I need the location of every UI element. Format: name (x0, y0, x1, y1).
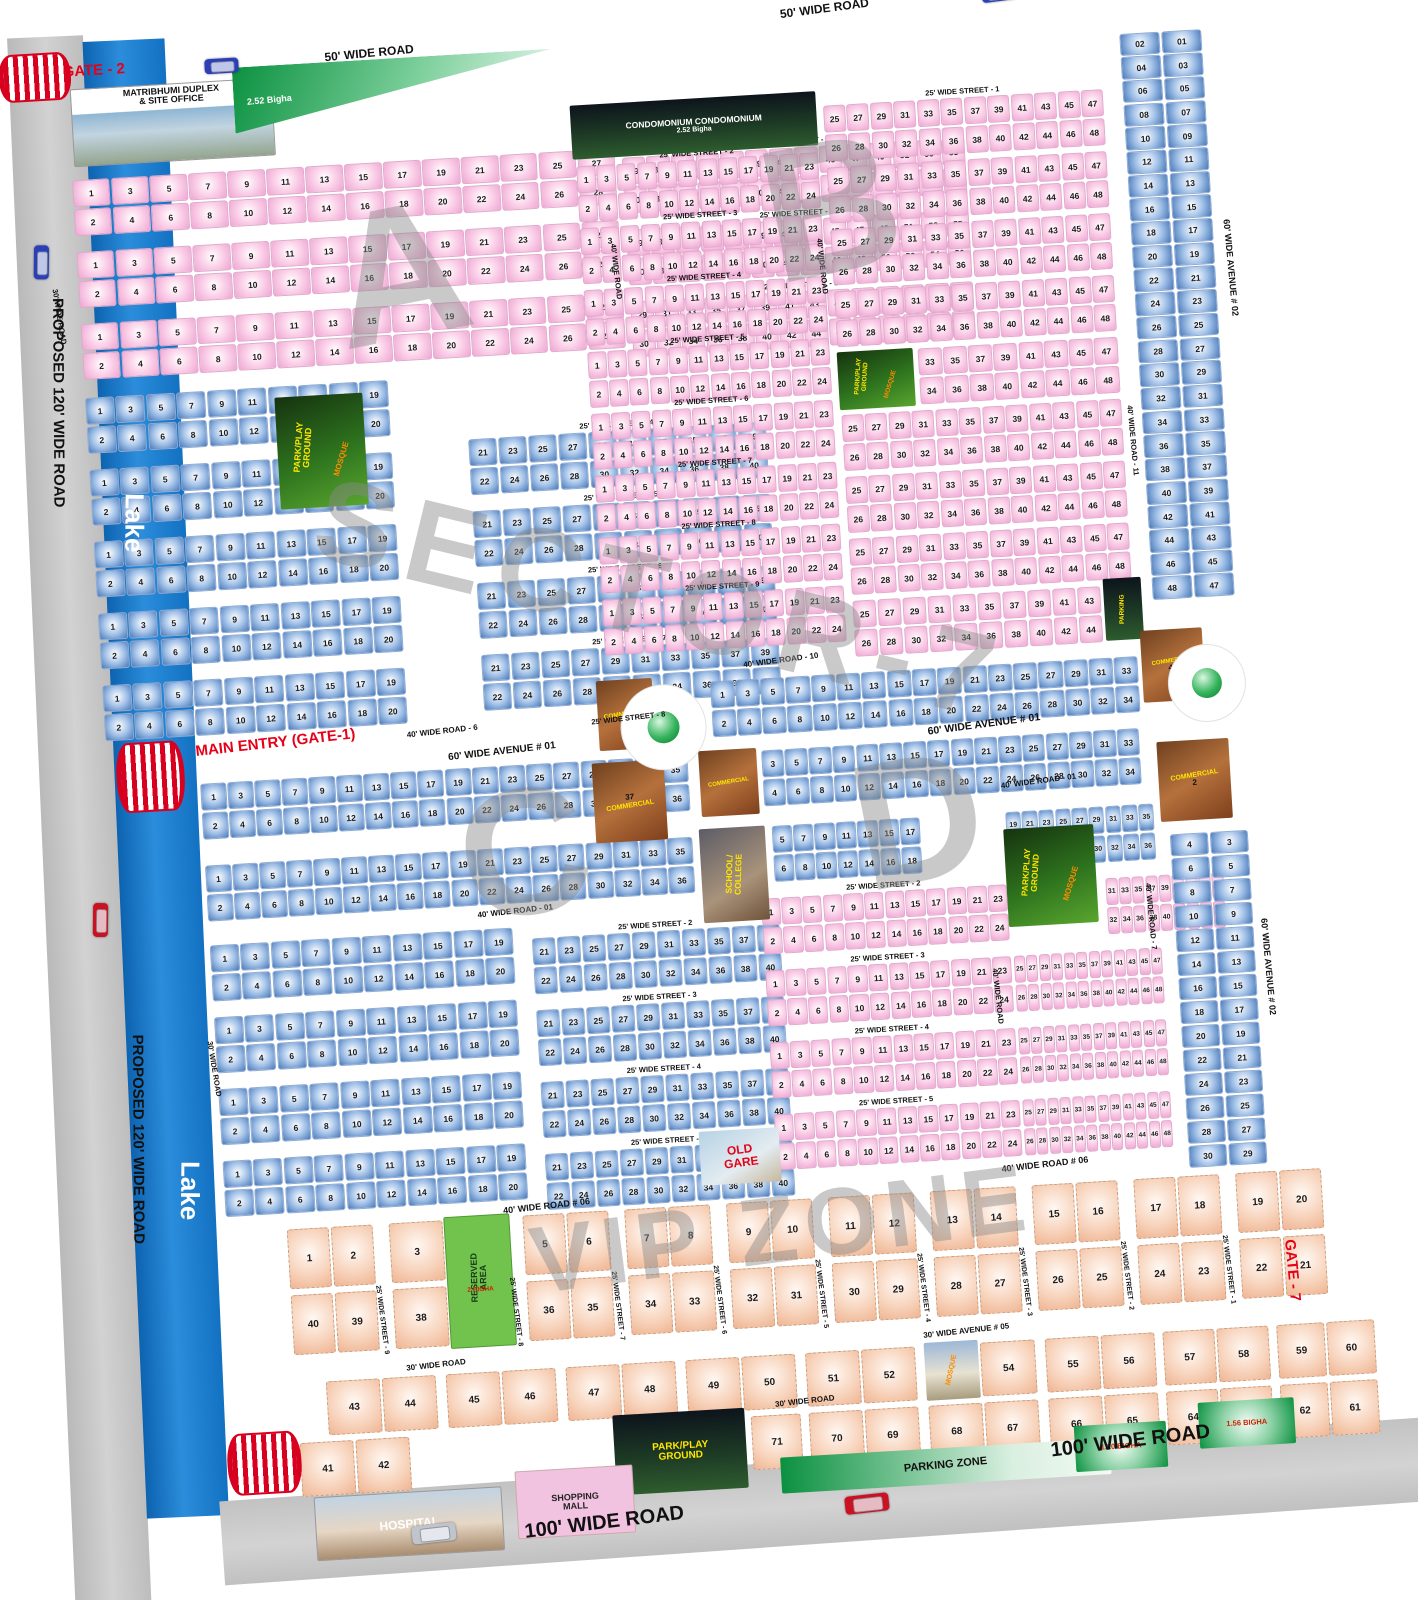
plot-cell: 45 (1083, 523, 1107, 552)
car-window (36, 251, 48, 275)
plot-cell: 8 (794, 852, 816, 881)
plot-cell: 31 (1105, 805, 1122, 834)
plot-cell: 40 (1011, 495, 1035, 524)
plot-cell: 30 (633, 960, 658, 989)
plot-cell: 8 (302, 967, 333, 997)
plot-cell: 10 (346, 1181, 377, 1211)
plot-cell: 42 (1119, 1050, 1132, 1078)
plot-cell: 13 (276, 529, 307, 559)
plot-cell: 13 (405, 1148, 436, 1178)
plot-cell: 5 (283, 1155, 314, 1185)
plot-cell: 12 (276, 339, 315, 369)
plot-cell: 2 (86, 425, 117, 455)
plot-cell: 17 (461, 1073, 492, 1103)
plot-cell: 43 (1034, 91, 1058, 120)
plot-cell: 17 (466, 1145, 497, 1175)
plot-cell: 20 (948, 915, 969, 944)
plot-cell: 12 (870, 992, 891, 1021)
plot-cell: 18 (424, 880, 452, 909)
plot-cell: 3 (596, 164, 617, 193)
plot-cell: 44 (1127, 977, 1140, 1005)
plot-cell: 21 (460, 155, 499, 185)
plot-cell: 36 (949, 250, 973, 279)
plot-cell: 5 (154, 245, 193, 275)
plot-cell: 3 (790, 1040, 811, 1069)
plot-cell: 7 (309, 1082, 340, 1112)
plot-cell: 1 (765, 969, 786, 998)
plot-cell: 42 (1012, 122, 1036, 151)
plot-cell: 1 (286, 1227, 332, 1290)
plot-cell: 45 (1068, 276, 1092, 305)
plot-cell: 23 (1181, 1240, 1227, 1303)
plot-cell: 32 (1061, 1125, 1074, 1153)
plot-cell: 45 (1068, 338, 1094, 367)
plot-cell: 42 (1016, 184, 1040, 213)
plot-cell: 27 (619, 1148, 644, 1177)
plot-cell: 46 (1148, 1120, 1161, 1148)
resv-image-block: RESERVED AREA2 BIGHA (443, 1213, 517, 1349)
plot-cell: 36 (960, 435, 984, 464)
plot-cell: 8 (828, 994, 849, 1023)
plot-cell: 29 (888, 411, 912, 440)
plot-cell: 23 (569, 1151, 594, 1180)
plot-cell: 19 (492, 1071, 523, 1101)
plot-cell: 1 (590, 413, 611, 442)
plot-cell: 15 (395, 853, 423, 882)
plot-cell: 32 (662, 1030, 687, 1059)
plot-cell: 25 (594, 1149, 619, 1178)
plot-cell: 08 (1123, 102, 1165, 127)
plot-cell: 47 (1081, 89, 1105, 118)
image-label: 2.52 Bigha (676, 125, 711, 134)
plot-cell: 21 (481, 653, 511, 682)
plot-cell: 17 (742, 217, 763, 246)
plot-cell: 02 (1119, 31, 1161, 56)
plot-cell: 12 (272, 267, 311, 297)
plot-cell: 20 (1181, 1023, 1221, 1048)
plot-strip: 2527293133353739414345472628303234363840… (1013, 946, 1166, 1013)
plot-cell: 48 (1082, 118, 1106, 147)
plot-cell: 23 (996, 1028, 1017, 1057)
plot-cell: 8 (833, 1066, 854, 1095)
plot-cell: 35 (1084, 1095, 1097, 1123)
plot-cell: 13 (396, 1004, 427, 1034)
plot-cell: 33 (924, 222, 948, 251)
plot-cell: 28 (866, 441, 890, 470)
plot-cell: 37 (740, 1069, 765, 1098)
plot-cell: 12 (1175, 928, 1215, 953)
plot-cell: 31 (1088, 657, 1114, 686)
plot-cell: 36 (663, 783, 691, 812)
plot-cell: 17 (934, 1031, 955, 1060)
plot-cell: 13 (709, 343, 730, 372)
plot-cell: 4 (783, 925, 804, 954)
plot-cell: 25 (1225, 1093, 1265, 1118)
plot-cell: 38 (991, 558, 1015, 587)
plot-cell: 40 (290, 1292, 336, 1355)
plot-cell: 25 (1178, 313, 1220, 338)
plot-cell: 25 (586, 1006, 611, 1035)
plot-cell: 47 (1092, 274, 1116, 303)
plot-cell: 5 (254, 779, 282, 808)
plot-cell: 3 (611, 411, 632, 440)
plot-cell: 36 (1086, 1124, 1099, 1152)
plot-cell: 9 (664, 284, 685, 313)
plot-cell: 22 (977, 1058, 998, 1087)
plot-cell: 15 (311, 599, 342, 629)
image-label: & SITE OFFICE (139, 94, 204, 107)
plot-cell: 6 (276, 1041, 307, 1071)
plot-cell: 9 (223, 676, 254, 706)
plot-cell: 17 (1172, 218, 1214, 243)
comm-image-block: COMMERCIAL2 (1156, 738, 1233, 822)
plot-cell: 1 (85, 396, 116, 426)
plot-cell: 6 (151, 493, 182, 523)
plot-cell: 38 (1098, 1123, 1111, 1151)
plot-cell: 3 (115, 247, 154, 277)
plot-cell: 44 (1046, 306, 1070, 335)
plot-cell: 8 (837, 1138, 858, 1167)
plot-cell: 15 (918, 1104, 939, 1133)
plot-cell: 20 (956, 1059, 977, 1088)
plot-cell: 37 (735, 997, 760, 1026)
plot-cell: 36 (1133, 905, 1147, 933)
plot-cell: 29 (640, 1074, 665, 1103)
plot-cell: 9 (231, 240, 270, 270)
park-image-block: PARK/PLAY GROUNDMOSQUE (1003, 824, 1099, 927)
plot-cell: 20 (1131, 244, 1173, 269)
plot-cell: 39 (1158, 874, 1172, 902)
plot-cell: 36 (716, 1099, 741, 1128)
plot-cell: 6 (147, 421, 178, 451)
plot-cell: 9 (814, 822, 836, 851)
plot-cell: 40 (996, 247, 1020, 276)
plot-cell: 8 (194, 272, 233, 302)
plot-cell: 40 (1107, 1051, 1120, 1079)
plot-cell: 29 (636, 1003, 661, 1032)
plot-cell: 46 (1063, 181, 1087, 210)
plot-cell: 09 (1166, 123, 1208, 148)
plot-strip: 25' WIDE STREET - 4135791113151719212324… (768, 1027, 1019, 1100)
plot-cell: 33 (927, 284, 951, 313)
plot-cell: 1 (200, 782, 228, 811)
plot-cell: 45 (1138, 947, 1151, 975)
plot-cell: 25 (538, 150, 577, 180)
plot-cell: 25 (1021, 733, 1045, 762)
plot-cell: 3 (132, 682, 163, 712)
plot-cell: 9 (672, 408, 693, 437)
plot-cell: 6 (156, 565, 187, 595)
plot-cell: 27 (611, 1004, 636, 1033)
plot-cell: 42 (1020, 370, 1046, 399)
image-label: PARK/PLAY GROUND (854, 358, 870, 395)
plot-cell: 1 (97, 612, 128, 642)
plot-cell: 33 (1116, 728, 1140, 757)
plot-cell: 11 (362, 934, 393, 964)
plot-cell: 33 (917, 347, 943, 376)
plot-cell: 30 (637, 1032, 662, 1061)
plot-cell: 6 (272, 969, 303, 999)
comm-image-block: 37COMMERCIAL (592, 759, 669, 843)
plot-cell: 26 (544, 251, 583, 281)
plot-cell: 26 (583, 963, 608, 992)
plot-cell: 20 (360, 409, 391, 439)
plot-cell: 10 (858, 1137, 879, 1166)
plot-cell: 24 (989, 913, 1010, 942)
plot-cell: 3 (119, 466, 150, 496)
plot-cell: 22 (542, 1109, 567, 1138)
plot-cell: 39 (334, 1290, 380, 1353)
plot-cell: 4 (796, 1141, 817, 1170)
plot-cell: 6 (160, 346, 199, 376)
plot-strip: 2527293133353739414345472628303234363840… (1021, 1090, 1174, 1157)
plot-cell: 4 (762, 778, 786, 807)
plot-cell: 32 (658, 958, 683, 987)
plot-cell: 32 (913, 438, 937, 467)
plot-cell: 48 (1104, 489, 1128, 518)
plot-cell: 21 (464, 227, 503, 257)
car-icon (34, 245, 49, 279)
plot-cell: 3 (227, 780, 255, 809)
image-label: PARKING ZONE (904, 1456, 988, 1475)
plot-strip: 2527293133353739414345472628303234363840… (1017, 1018, 1170, 1085)
plot-cell: 19 (950, 958, 971, 987)
plot-cell: 9 (340, 1080, 371, 1110)
plot-cell: 44 (1045, 368, 1071, 397)
plot-cell: 3 (111, 175, 150, 205)
plot-cell: 29 (644, 1146, 669, 1175)
plot-cell: 21 (975, 1029, 996, 1058)
plot-cell: 36 (1140, 832, 1157, 861)
plot-cell: 35 (942, 345, 968, 374)
plot-cell: 47 (1094, 336, 1120, 365)
plot-cell: 47 (1159, 1090, 1172, 1118)
plot-cell: 16 (911, 990, 932, 1019)
plot-cell: 39 (998, 280, 1022, 309)
plot-cell: 47 (1103, 460, 1127, 489)
plot-cell: 21 (790, 339, 811, 368)
plot-cell: 36 (712, 1027, 737, 1056)
plot-cell: 44 (1078, 615, 1103, 644)
plot-cell: 42 (1053, 616, 1078, 645)
plot-cell: 34 (683, 957, 708, 986)
plot-cell: 43 (1059, 525, 1083, 554)
plot-cell: 12 (342, 885, 370, 914)
plot-cell: 35 (1185, 431, 1227, 456)
plot-strip: 38 (391, 1285, 451, 1350)
plot-cell: 26 (846, 504, 870, 533)
plot-cell: 36 (953, 312, 977, 341)
plot-cell: 27 (1045, 732, 1069, 761)
plot-cell: 46 (1070, 367, 1096, 396)
plot-cell: 30 (1040, 982, 1053, 1010)
plot-cell: 10 (816, 851, 838, 880)
plot-cell: 31 (1093, 729, 1117, 758)
plot-cell: 25 (1022, 1099, 1035, 1127)
plot-cell: 34 (1115, 685, 1141, 714)
plot-cell: 39 (1009, 466, 1033, 495)
plot-cell: 10 (315, 886, 343, 915)
plot-cell: 33 (685, 1000, 710, 1029)
plot-cell: 8 (307, 1039, 338, 1069)
plot-cell: 5 (810, 1039, 831, 1068)
plot-cell: 24 (567, 1108, 592, 1137)
plot-cell: 18 (936, 1060, 957, 1089)
plot-strip: 2423 (1136, 1239, 1228, 1306)
plot-cell: 37 (968, 344, 994, 373)
plot-cell: 04 (1120, 55, 1162, 80)
plot-cell: 34 (1069, 1053, 1082, 1081)
plot-cell: 20 (373, 624, 404, 654)
plot-cell: 21 (540, 1080, 565, 1109)
plot-cell: 19 (1173, 242, 1215, 267)
plot-cell: 31 (919, 533, 943, 562)
car-icon (204, 57, 239, 74)
plot-strip: 1357911131517192468101214161820 (221, 1142, 529, 1218)
plot-cell: 33 (1118, 876, 1132, 904)
plot-cell: 34 (691, 1100, 716, 1129)
plot-strip: 4142 (298, 1436, 413, 1499)
plot-cell: 4 (229, 809, 257, 838)
plot-cell: 1 (222, 1159, 253, 1189)
plot-cell: 41 (1036, 526, 1060, 555)
plot-cell: 9 (227, 169, 266, 199)
plot-cell: 5 (616, 163, 637, 192)
plot-cell: 45 (1192, 549, 1234, 574)
image-label: RESERVED AREA (470, 1253, 490, 1303)
plot-cell: 5 (279, 1084, 310, 1114)
plot-cell: 5 (274, 1012, 305, 1042)
plot-cell: 11 (374, 1150, 405, 1180)
plot-cell: 46 (1070, 305, 1094, 334)
plot-strip: 4039 (290, 1289, 382, 1356)
plot-cell: 46 (1140, 976, 1153, 1004)
plot-cell: 17 (745, 279, 766, 308)
plot-cell: 45 (1064, 214, 1088, 243)
plot-cell: 21 (793, 400, 814, 429)
plot-cell: 48 (1157, 1048, 1170, 1076)
plot-cell: 16 (396, 881, 424, 910)
plot-cell: 26 (1185, 1095, 1225, 1120)
image-label: COMMERCIAL (708, 776, 750, 789)
plot-cell: 13 (697, 158, 718, 187)
plot-cell: 48 (1161, 1119, 1174, 1147)
plot-cell: 33 (1067, 1024, 1080, 1052)
plot-cell: 6 (280, 1113, 311, 1143)
plot-cell: 2 (762, 926, 783, 955)
plot-cell: 7 (831, 1037, 852, 1066)
plot-cell: 35 (1076, 951, 1089, 979)
plot-cell: 24 (509, 325, 548, 355)
plot-cell: 15 (390, 771, 418, 800)
plot-cell: 15 (1171, 194, 1213, 219)
plot-cell: 28 (559, 461, 589, 490)
plot-cell: 3 (240, 942, 271, 972)
image-label: 2 (1192, 779, 1197, 788)
plot-cell: 42 (355, 1436, 413, 1494)
plot-cell: 15 (435, 1146, 466, 1176)
plot-cell: 4 (246, 1042, 277, 1072)
plot-cell: 35 (940, 97, 964, 126)
plot-cell: 11 (366, 1006, 397, 1036)
plot-cell: 48 (1090, 241, 1114, 270)
plot-cell: 59 (1276, 1322, 1328, 1380)
plot-cell: 27 (868, 474, 892, 503)
image-label: PARK/PLAY GROUND (1020, 848, 1041, 897)
plot-strip: 1357911131517192468101214161820 (217, 1070, 525, 1146)
plot-cell: 33 (1121, 804, 1138, 833)
plot-cell: 2 (91, 497, 122, 527)
plot-cell: 38 (969, 373, 995, 402)
plot-cell: 22 (1133, 268, 1175, 293)
plot-cell: 58 (1216, 1325, 1272, 1383)
plot-cell: 19 (769, 340, 790, 369)
plot-cell: 8 (288, 888, 316, 917)
park-image-block: PARK/PLAY GROUNDMOSQUE (837, 348, 916, 410)
plot-cell: 9 (668, 346, 689, 375)
plot-cell: 29 (1069, 731, 1093, 760)
plot-cell: 7 (184, 534, 215, 564)
plot-cell: 8 (186, 563, 217, 593)
plot-cell: 8 (824, 923, 845, 952)
plot-cell: 41 (1052, 587, 1077, 616)
plot-cell: 19 (488, 999, 519, 1029)
plot-cell: 48 (1152, 976, 1165, 1004)
plot-cell: 23 (510, 651, 540, 680)
plot-cell: 5 (802, 895, 823, 924)
comm-image-block: COMMERCIAL (698, 748, 760, 817)
plot-cell: 37 (967, 158, 991, 187)
plot-cell: 10 (225, 705, 256, 735)
plot-cell: 10 (853, 1065, 874, 1094)
plot-cell: 1 (72, 178, 111, 208)
plot-cell: 38 (969, 187, 993, 216)
plot-cell: 3 (115, 394, 146, 424)
plot-cell: 14 (282, 630, 313, 660)
plot-cell: 32 (1057, 1053, 1070, 1081)
plot-cell: 27 (1179, 336, 1221, 361)
plot-cell: 43 (1041, 215, 1065, 244)
plot-cell: 7 (835, 1109, 856, 1138)
plot-cell: 27 (1034, 1098, 1047, 1126)
plot-cell: 29 (892, 473, 916, 502)
plot-cell: 31 (612, 840, 640, 869)
plot-cell: 33 (690, 1072, 715, 1101)
plot-cell: 4 (254, 1186, 285, 1216)
plot-cell: 11 (340, 856, 368, 885)
plot-cell: 14 (1176, 952, 1216, 977)
plot-cell: 9 (847, 964, 868, 993)
plot-cell: 16 (1075, 1180, 1121, 1243)
plot-cell: 19 (955, 1030, 976, 1059)
plot-cell: 7 (189, 606, 220, 636)
plot-cell: 15 (729, 342, 750, 371)
plot-cell: 43 (1037, 153, 1061, 182)
plot-cell: 36 (1082, 1052, 1095, 1080)
plot-cell: 41 (1032, 464, 1056, 493)
plot-cell: 17 (341, 597, 372, 627)
plot-cell: 36 (668, 865, 696, 894)
plot-strip: 5960 (1275, 1318, 1378, 1380)
plot-cell: 28 (612, 1033, 637, 1062)
plot-cell: 35 (944, 159, 968, 188)
plot-cell: 5 (627, 348, 648, 377)
plot-cell: 43 (1134, 1092, 1147, 1120)
plot-cell: 40 (1102, 979, 1115, 1007)
plot-cell: 10 (849, 993, 870, 1022)
plot-cell: 32 (906, 314, 930, 343)
plot-cell: 26 (1015, 984, 1028, 1012)
